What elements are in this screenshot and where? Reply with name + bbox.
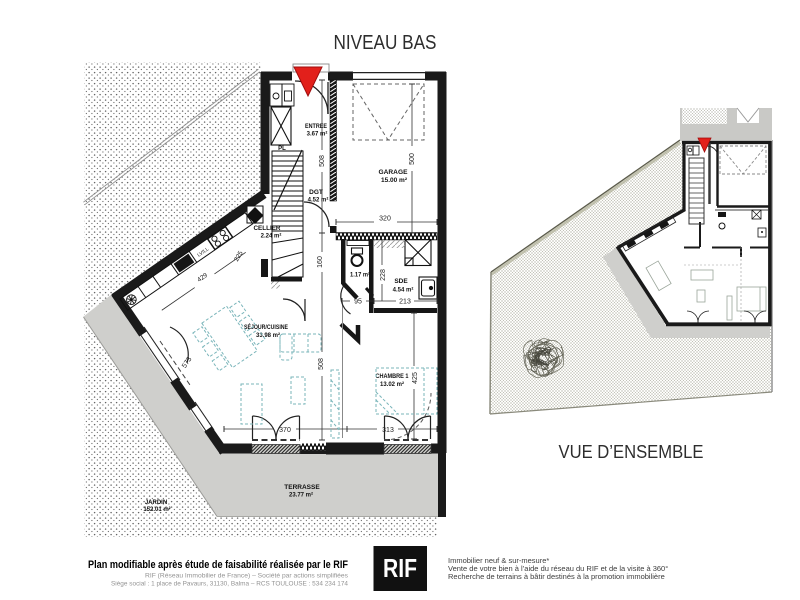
svg-text:95: 95 (354, 299, 362, 306)
svg-text:NIVEAU BAS: NIVEAU BAS (334, 32, 437, 54)
svg-text:1.17 m²: 1.17 m² (350, 272, 370, 279)
svg-text:152.01 m²: 152.01 m² (143, 506, 170, 513)
svg-text:VUE D’ENSEMBLE: VUE D’ENSEMBLE (559, 442, 704, 462)
svg-text:425: 425 (412, 372, 419, 384)
svg-text:ENTREE: ENTREE (305, 123, 327, 130)
svg-text:508: 508 (319, 155, 326, 167)
svg-text:CELLIER: CELLIER (254, 225, 282, 232)
svg-text:13.02 m²: 13.02 m² (380, 381, 404, 388)
svg-text:Plan modifiable après étude de: Plan modifiable après étude de faisabili… (88, 559, 348, 571)
svg-text:SDE: SDE (394, 278, 408, 285)
svg-text:33.98 m²: 33.98 m² (256, 332, 280, 339)
svg-text:15.00 m²: 15.00 m² (381, 177, 408, 184)
svg-text:370: 370 (279, 427, 291, 434)
svg-text:500: 500 (409, 153, 416, 165)
svg-text:23.77 m²: 23.77 m² (289, 492, 313, 499)
svg-text:DGT: DGT (309, 189, 323, 196)
svg-text:SÉJOUR/CUISINE: SÉJOUR/CUISINE (244, 323, 288, 331)
svg-text:Recherche de terrains à bâtir: Recherche de terrains à bâtir destinés à… (448, 572, 665, 581)
svg-text:Siège social : 1 place de Pava: Siège social : 1 place de Pavaurs, 31130… (111, 581, 348, 588)
svg-text:CHAMBRE 1: CHAMBRE 1 (376, 373, 409, 380)
svg-text:160: 160 (317, 256, 324, 268)
svg-text:213: 213 (399, 299, 411, 306)
svg-text:228: 228 (380, 269, 387, 281)
svg-text:4.54 m²: 4.54 m² (393, 287, 414, 294)
svg-text:JARDIN: JARDIN (145, 500, 167, 506)
svg-text:RIF: RIF (383, 553, 417, 583)
svg-text:TERRASSE: TERRASSE (284, 484, 320, 491)
svg-text:2.24 m²: 2.24 m² (261, 233, 282, 240)
svg-text:320: 320 (379, 216, 391, 223)
svg-text:3.67 m²: 3.67 m² (307, 131, 328, 138)
svg-text:GARAGE: GARAGE (379, 169, 408, 176)
svg-text:4.52 m²: 4.52 m² (308, 197, 329, 204)
svg-text:RIF (Réseau Immobilier de Fran: RIF (Réseau Immobilier de France) – Soci… (145, 573, 349, 580)
svg-text:508: 508 (318, 358, 325, 370)
